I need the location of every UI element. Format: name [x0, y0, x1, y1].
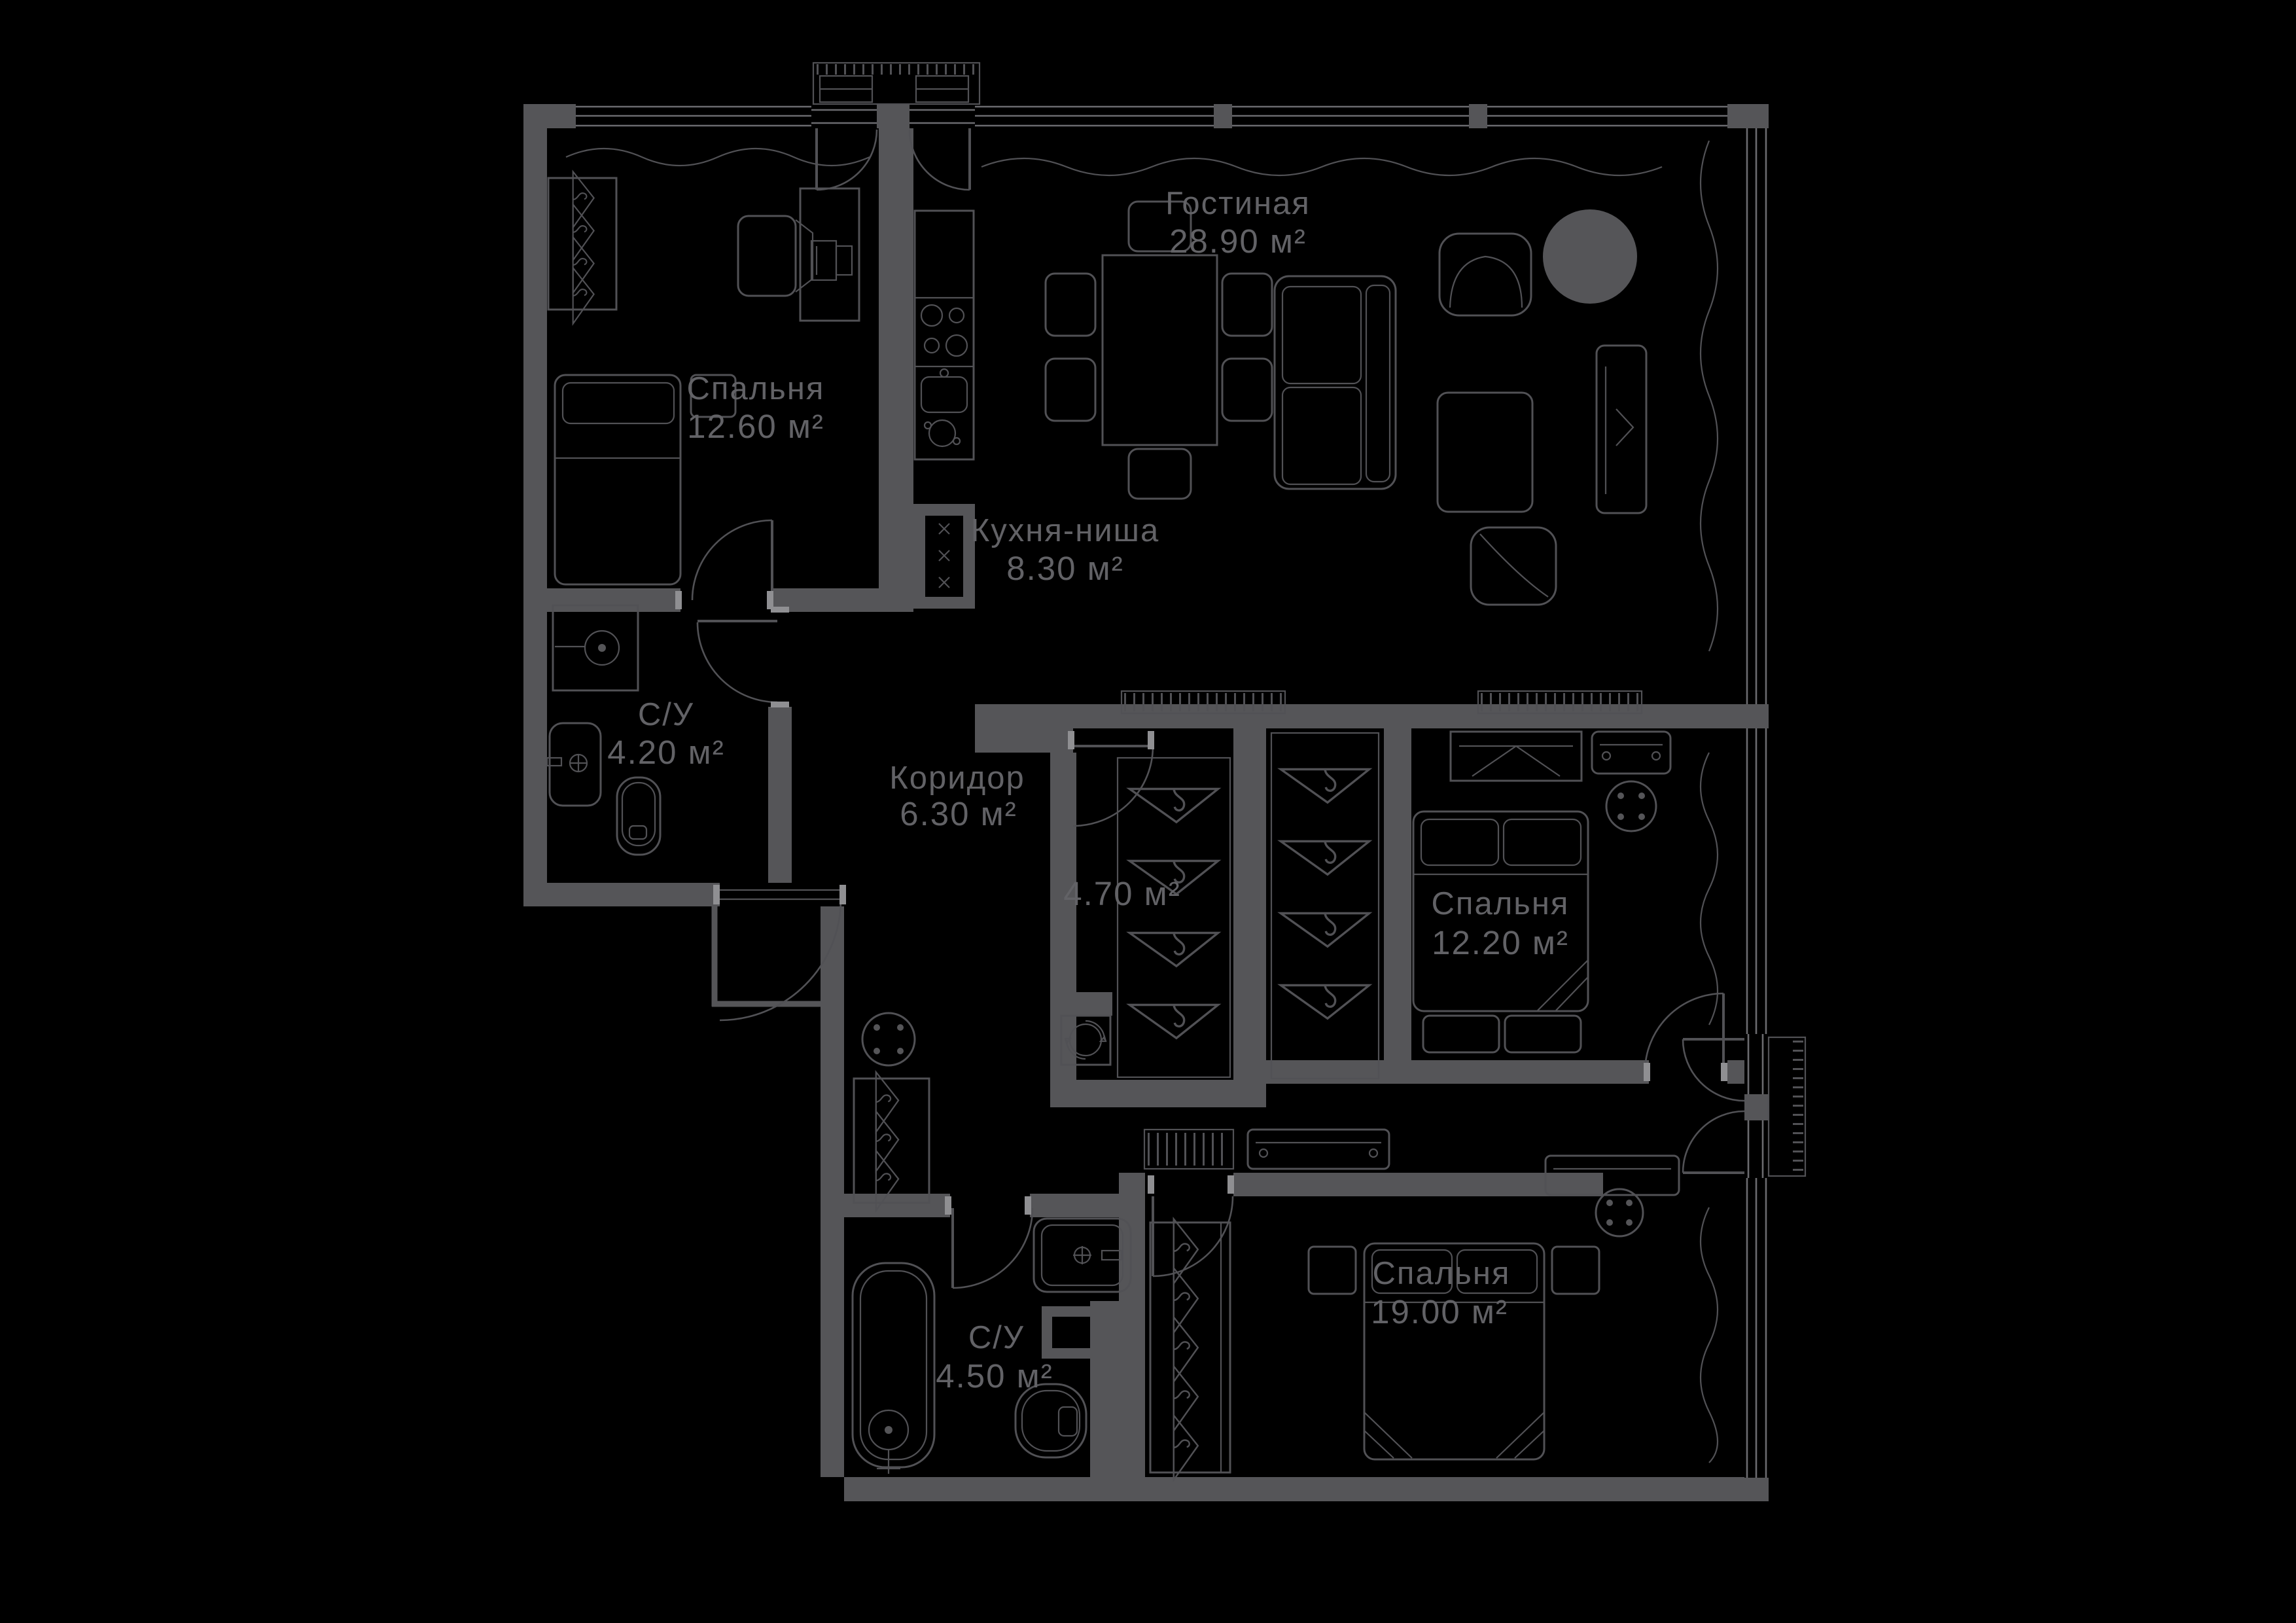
living-furniture	[981, 141, 1718, 713]
wardrobe-column-1	[1118, 758, 1230, 1077]
curtain-line	[1701, 1207, 1718, 1463]
sofa-icon	[1275, 276, 1396, 489]
room-label-bath1: С/У	[638, 697, 694, 732]
door-bath1	[698, 607, 789, 707]
toilet-icon	[617, 777, 660, 855]
sliding-wardrobe-icon	[1451, 732, 1581, 781]
nightstand-icon	[1309, 1247, 1356, 1294]
room-area-kitchen: 8.30 м²	[1006, 550, 1123, 587]
room-area-bedroom2: 12.20 м²	[1432, 924, 1569, 961]
room-label-bedroom2: Спальня	[1432, 886, 1570, 921]
kitchen-counter-icon	[915, 211, 974, 459]
duct-icon	[919, 510, 969, 603]
door-bedroom2	[1644, 993, 1727, 1081]
door-closet	[1068, 731, 1154, 826]
kitchen-furniture	[915, 211, 974, 603]
toilet-icon	[1016, 1384, 1086, 1457]
room-area-bath2: 4.50 м²	[936, 1357, 1053, 1395]
wardrobe-column-2	[1271, 733, 1379, 1079]
room-label-corridor: Коридор	[889, 760, 1025, 796]
room-label-bedroom3: Спальня	[1373, 1256, 1511, 1291]
balcony-doors-right	[1683, 1034, 1769, 1178]
dresser-icon	[1592, 732, 1670, 774]
wardrobe-icon	[1150, 1219, 1230, 1480]
armchair-icon	[1439, 234, 1531, 315]
window-band-top-bedroom	[576, 104, 811, 128]
walls	[523, 104, 1769, 1501]
desk-icon	[800, 188, 859, 321]
door-bedroom1	[675, 520, 773, 609]
bed-icon	[555, 375, 680, 584]
room-area-bath1: 4.20 м²	[607, 734, 724, 771]
bathtub-icon	[853, 1263, 934, 1474]
hob-icon	[921, 305, 967, 356]
round-table-icon	[862, 1013, 915, 1065]
room-label-bedroom1: Спальня	[687, 371, 825, 406]
curtain-line	[1701, 753, 1718, 1025]
window-band-right-bedroom3	[1744, 1178, 1769, 1478]
balcony-top	[813, 63, 980, 104]
armchair2-icon	[1471, 527, 1556, 605]
balcony-right	[1769, 1037, 1805, 1176]
kitchen-sink-icon	[921, 369, 967, 446]
pouf-icon	[1543, 209, 1637, 304]
tv-console-icon	[1597, 346, 1646, 513]
room-area-bedroom3: 19.00 м²	[1371, 1293, 1508, 1330]
office-chair-icon	[738, 216, 813, 296]
shower-icon	[553, 605, 638, 690]
floor-plan-svg: Спальня 12.60 м² Кухня-ниша 8.30 м² Гост…	[0, 0, 2296, 1623]
coffee-table-icon	[1438, 393, 1532, 512]
curtain-line	[981, 158, 1662, 175]
window-band-right-living	[1744, 128, 1769, 704]
room-label-living: Гостиная	[1165, 186, 1311, 221]
shoe-cabinet-icon	[1144, 1130, 1233, 1169]
room-label-kitchen: Кухня-ниша	[971, 513, 1159, 548]
curtain-line-right	[1701, 141, 1718, 651]
nightstand-icon	[1552, 1247, 1599, 1294]
door-bath2	[945, 1196, 1033, 1288]
room-area-bedroom1: 12.60 м²	[687, 408, 824, 445]
room-area-living: 28.90 м²	[1169, 223, 1307, 260]
sink-icon	[1034, 1219, 1131, 1292]
laptop-icon	[811, 241, 852, 280]
bedroom1-furniture	[548, 149, 870, 584]
stool-icon	[1596, 1189, 1643, 1236]
room-area-closet: 4.70 м²	[1063, 875, 1180, 912]
console-icon	[1248, 1130, 1389, 1169]
room-area-corridor: 6.30 м²	[900, 795, 1017, 832]
window-band-top-living	[975, 104, 1727, 128]
sink-icon	[547, 723, 601, 806]
coat-rack-icon	[854, 1072, 929, 1211]
room-label-bath2: С/У	[968, 1320, 1025, 1355]
floor-plan-canvas: Спальня 12.60 м² Кухня-ниша 8.30 м² Гост…	[0, 0, 2296, 1623]
window-band-right-bedroom2	[1744, 728, 1769, 1034]
wardrobe-icon	[548, 171, 616, 323]
curtain-line	[566, 149, 870, 166]
stool-icon	[1606, 781, 1656, 831]
